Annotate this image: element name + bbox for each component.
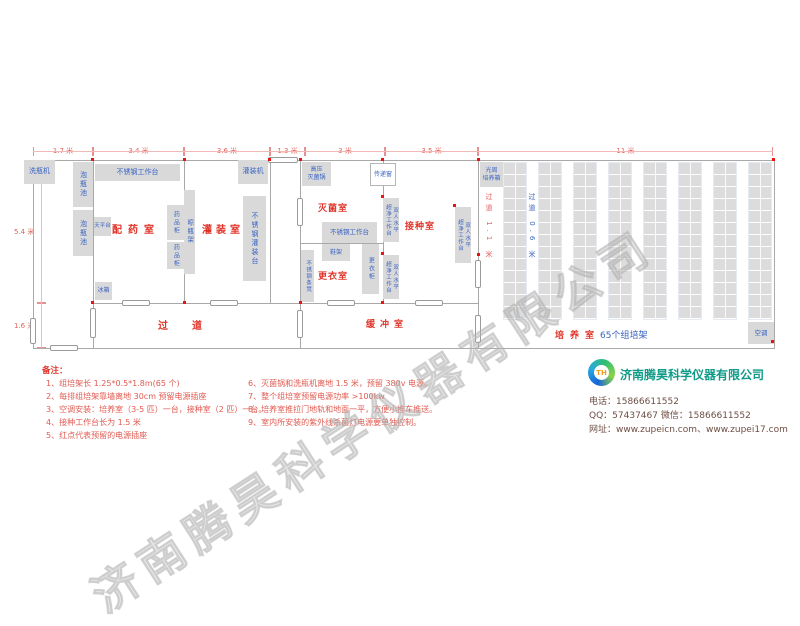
power-outlet-dot (268, 158, 271, 161)
room-label-filling: 灌装室 (202, 221, 244, 236)
stainless-worktable-label: 不锈钢工作台 (330, 228, 369, 236)
power-outlet-dot (299, 158, 302, 161)
door (122, 300, 150, 306)
dim-top-3: 3.6 米 (184, 146, 270, 157)
note-item: 4、接种工作台长为 1.5 米 (46, 417, 141, 428)
note-item: 9、室内所安装的紫外线杀菌灯电源要单独控制。 (248, 417, 421, 428)
culture-room-rack-count: 65个组培架 (600, 331, 647, 341)
bottle-drying-rack-box: 晾瓶架 (184, 190, 195, 274)
laminar-flow-bench-label: 双人水平 超净工作台 (384, 261, 398, 294)
medicine-cabinet-box: 药品柜 (167, 242, 184, 269)
power-outlet-dot (381, 301, 384, 304)
bottle-soak-pool-label: 泡瓶池 (78, 171, 87, 198)
power-outlet-dot (771, 340, 774, 343)
aisle-label-1: 过道 1.1 米 (484, 193, 494, 278)
stainless-worktable-label: 不锈钢工作台 (117, 168, 159, 177)
company-phone: 电话：15866611552 (589, 394, 679, 407)
filling-machine-box: 灌装机 (238, 160, 268, 184)
room-label-inoculation: 接种室 (405, 219, 435, 232)
stainless-worktable-box: 不锈钢工作台 (95, 164, 180, 181)
photoperiod-incubator-label: 光周 培养箱 (482, 167, 500, 183)
balance-table-box: 天平台 (94, 217, 111, 236)
note-item: 7、整个组培室预留电源功率 >100kw (248, 391, 385, 402)
pass-window-box: 传递窗 (370, 163, 396, 186)
power-outlet-dot (477, 158, 480, 161)
laminar-flow-bench-label: 双人水平 超净工作台 (456, 219, 470, 252)
culture-rack-row (748, 162, 772, 320)
filling-machine-label: 灌装机 (243, 167, 264, 176)
refrigerator-label: 冰箱 (97, 287, 109, 295)
bottle-drying-rack-label: 晾瓶架 (185, 219, 193, 245)
note-item: 8、培养室推拉门地轨和地面一平，方便小推车推送。 (248, 404, 437, 415)
culture-rack-row (678, 162, 702, 320)
culture-rack-row (713, 162, 737, 320)
bottle-washer-label: 洗瓶机 (29, 167, 50, 176)
note-item: 6、灭菌锅和洗瓶机离地 1.5 米，预留 380v 电源。 (248, 378, 432, 389)
autoclave-box: 高压 灭菌锅 (302, 162, 331, 186)
power-outlet-dot (91, 158, 94, 161)
bottle-soak-pool-box: 泡瓶池 (73, 210, 93, 256)
door (30, 318, 36, 344)
door (297, 310, 303, 338)
power-outlet-dot (477, 253, 480, 256)
culture-rack-row (608, 162, 632, 320)
note-item: 1、组培架长 1.25*0.5*1.8m(65 个) (46, 378, 180, 389)
culture-rack-row (643, 162, 667, 320)
dim-left-2: 1.6 米 (36, 303, 47, 348)
door (90, 308, 96, 338)
stainless-worktable-box: 不锈钢工作台 (322, 222, 377, 243)
medicine-cabinet-box: 药品柜 (167, 205, 184, 240)
culture-rack-row (573, 162, 597, 320)
bottle-washer-box: 洗瓶机 (24, 160, 55, 184)
company-qq-wechat: QQ：57437467 微信：15866611552 (589, 408, 751, 421)
stainless-filling-table-box: 不锈钢灌装台 (243, 196, 266, 281)
company-logo: TH (588, 359, 615, 386)
bottle-soak-pool-box: 泡瓶池 (73, 162, 93, 207)
wardrobe-label: 更衣柜 (367, 257, 375, 281)
door (50, 345, 78, 351)
room-label-changing: 更衣室 (318, 269, 348, 282)
note-item: 2、每排组培架靠墙离地 30cm 预留电源插座 (46, 391, 207, 402)
wardrobe-box: 更衣柜 (362, 244, 379, 294)
dim-top-1: 1.7 米 (33, 146, 93, 157)
shoe-rack-label: 鞋架 (330, 249, 342, 257)
power-outlet-dot (91, 301, 94, 304)
dim-top-6: 3.5 米 (385, 146, 478, 157)
balance-table-label: 天平台 (94, 223, 111, 230)
aisle-label-2: 过道 0.6 米 (527, 193, 537, 278)
autoclave-label: 高压 灭菌锅 (307, 166, 325, 182)
door (297, 198, 303, 226)
laminar-flow-bench-label: 双人水平 超净工作台 (384, 204, 398, 237)
room-label-sterilization: 灭菌室 (318, 201, 348, 214)
stainless-bench-label: 不锈钢条凳 (304, 260, 311, 293)
door (475, 315, 481, 343)
company-logo-text: TH (594, 365, 609, 380)
company-name: 济南腾昊科学仪器有限公司 (620, 366, 764, 383)
door (415, 300, 443, 306)
medicine-cabinet-label: 药品柜 (172, 244, 180, 268)
note-item: 3、空调安装：培养室（3-5 匹）一台，接种室（2 匹）一台。 (46, 404, 266, 415)
room-label-buffer: 缓冲室 (366, 317, 408, 330)
culture-rack-row (503, 162, 527, 320)
photoperiod-incubator-box: 光周 培养箱 (480, 162, 503, 187)
power-outlet-dot (381, 195, 384, 198)
wall (270, 160, 271, 303)
door (475, 260, 481, 288)
door (268, 157, 298, 163)
dim-top-5: 3 米 (305, 146, 385, 157)
power-outlet-dot (381, 158, 384, 161)
air-conditioner-label: 空调 (755, 329, 768, 337)
laminar-flow-bench-box: 双人水平 超净工作台 (383, 255, 399, 299)
bottle-soak-pool-label: 泡瓶池 (78, 220, 87, 247)
wall (774, 160, 775, 349)
medicine-cabinet-label: 药品柜 (172, 211, 180, 235)
stainless-bench-box: 不锈钢条凳 (301, 250, 314, 302)
dim-top-4: 1.3 米 (270, 146, 305, 157)
power-outlet-dot (381, 252, 384, 255)
power-outlet-dot (183, 158, 186, 161)
room-label-culture: 培养室65个组培架 (555, 328, 647, 341)
notes-title: 备注： (42, 364, 68, 376)
laminar-flow-bench-box: 双人水平 超净工作台 (455, 207, 471, 263)
dim-top-2: 3.4 米 (93, 146, 184, 157)
culture-rack-row (538, 162, 562, 320)
door (327, 300, 355, 306)
wall (33, 348, 775, 349)
power-outlet-dot (453, 204, 456, 207)
shoe-rack-box: 鞋架 (322, 244, 350, 261)
note-item: 5、红点代表预留的电源插座 (46, 430, 147, 441)
room-label-preparation: 配药室 (112, 221, 160, 236)
refrigerator-box: 冰箱 (95, 282, 112, 300)
power-outlet-dot (772, 158, 775, 161)
dim-top-7: 11 米 (478, 146, 773, 157)
stainless-filling-table-label: 不锈钢灌装台 (250, 212, 259, 266)
door (210, 300, 238, 306)
company-website: 网址：www.zupeicn.com、www.zupei17.com (589, 422, 788, 435)
room-label-corridor: 过道 (158, 317, 226, 332)
power-outlet-dot (183, 301, 186, 304)
power-outlet-dot (299, 301, 302, 304)
laminar-flow-bench-box: 双人水平 超净工作台 (383, 198, 399, 242)
pass-window-label: 传递窗 (374, 171, 392, 179)
wall (33, 160, 775, 161)
